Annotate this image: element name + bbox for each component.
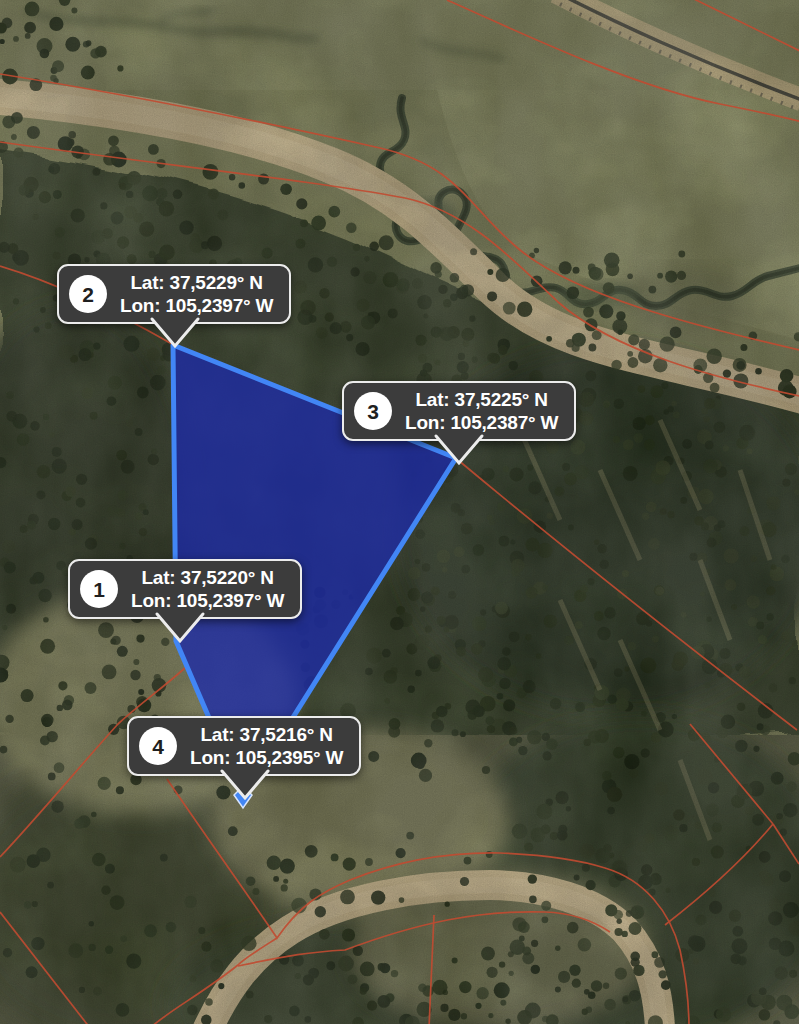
marker-tooltip-4[interactable]: 4 Lat: 37,5216° N Lon: 105,2395° W bbox=[127, 716, 361, 776]
marker-longitude: Lon: 105,2397° W bbox=[120, 294, 273, 317]
tooltip-pointer bbox=[219, 770, 271, 800]
marker-number-badge: 4 bbox=[139, 727, 177, 765]
marker-latitude: Lat: 37,5225° N bbox=[405, 388, 558, 411]
marker-latitude: Lat: 37,5216° N bbox=[190, 723, 343, 746]
marker-longitude: Lon: 105,2397° W bbox=[131, 589, 284, 612]
marker-coordinates: Lat: 37,5220° N Lon: 105,2397° W bbox=[131, 566, 284, 612]
marker-coordinates: Lat: 37,5225° N Lon: 105,2387° W bbox=[405, 388, 558, 434]
marker-latitude: Lat: 37,5229° N bbox=[120, 271, 273, 294]
tooltip-pointer bbox=[149, 318, 201, 348]
marker-number-badge: 1 bbox=[80, 570, 118, 608]
marker-longitude: Lon: 105,2395° W bbox=[190, 746, 343, 769]
tooltip-pointer bbox=[154, 613, 206, 643]
map-viewport[interactable]: 2 Lat: 37,5229° N Lon: 105,2397° W 3 Lat… bbox=[0, 0, 799, 1024]
marker-tooltip-2[interactable]: 2 Lat: 37,5229° N Lon: 105,2397° W bbox=[57, 264, 291, 324]
tooltip-pointer bbox=[433, 435, 485, 465]
marker-latitude: Lat: 37,5220° N bbox=[131, 566, 284, 589]
marker-tooltip-1[interactable]: 1 Lat: 37,5220° N Lon: 105,2397° W bbox=[68, 559, 302, 619]
marker-coordinates: Lat: 37,5216° N Lon: 105,2395° W bbox=[190, 723, 343, 769]
marker-longitude: Lon: 105,2387° W bbox=[405, 411, 558, 434]
marker-number-badge: 2 bbox=[69, 275, 107, 313]
marker-coordinates: Lat: 37,5229° N Lon: 105,2397° W bbox=[120, 271, 273, 317]
satellite-map bbox=[0, 0, 799, 1024]
marker-tooltip-3[interactable]: 3 Lat: 37,5225° N Lon: 105,2387° W bbox=[342, 381, 576, 441]
marker-number-badge: 3 bbox=[354, 392, 392, 430]
